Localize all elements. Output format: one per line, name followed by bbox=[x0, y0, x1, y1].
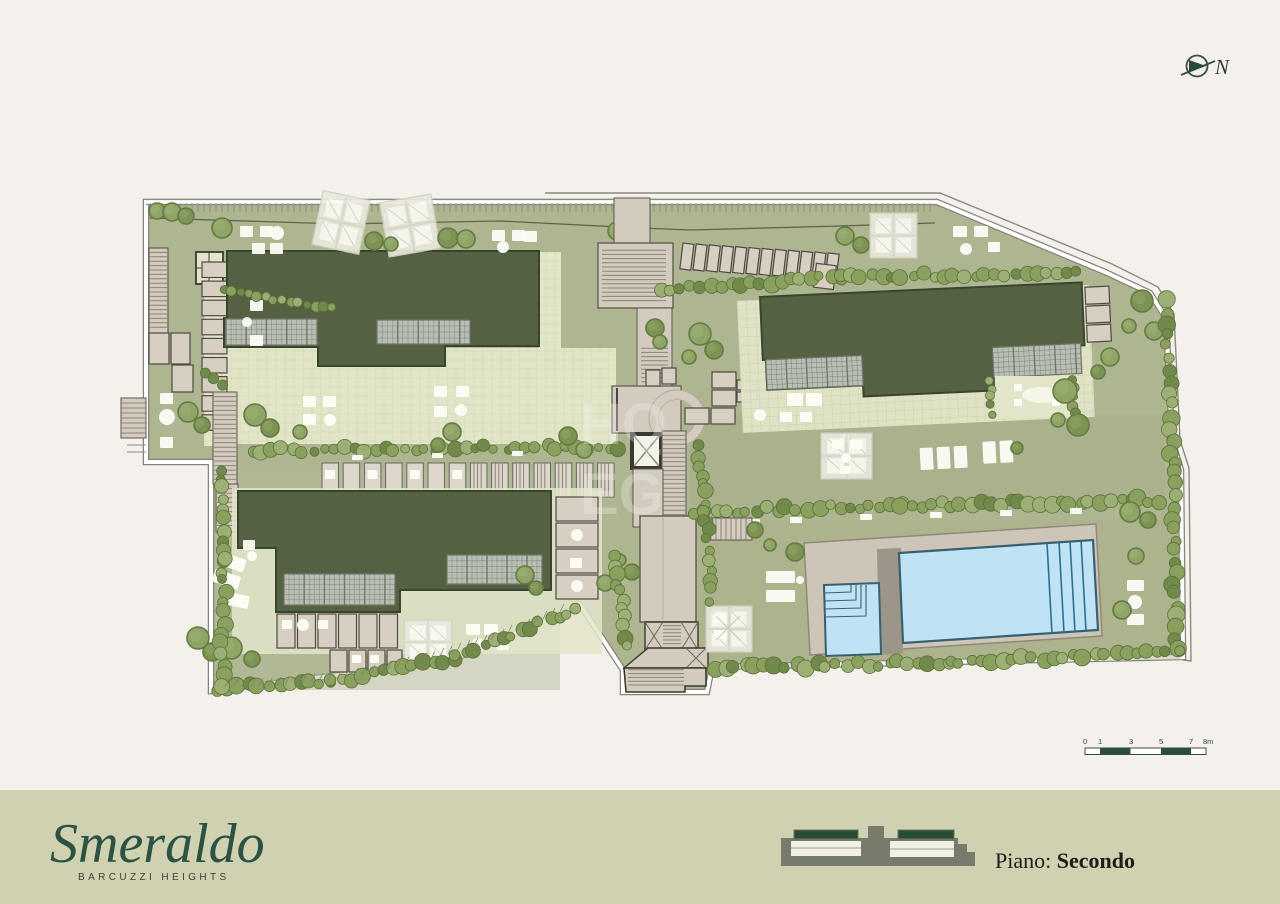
svg-text:HQ: HQ bbox=[580, 392, 667, 457]
svg-text:1: 1 bbox=[1098, 737, 1102, 746]
svg-text:8m: 8m bbox=[1203, 737, 1213, 746]
svg-text:Smeraldo: Smeraldo bbox=[50, 813, 265, 875]
svg-text:7: 7 bbox=[1189, 737, 1193, 746]
svg-text:EG: EG bbox=[580, 462, 664, 527]
svg-text:5: 5 bbox=[1159, 737, 1163, 746]
svg-text:N: N bbox=[1214, 55, 1230, 79]
svg-text:0: 0 bbox=[1083, 737, 1087, 746]
svg-text:BARCUZZI HEIGHTS: BARCUZZI HEIGHTS bbox=[78, 872, 230, 883]
svg-text:Piano: Secondo: Piano: Secondo bbox=[995, 848, 1135, 873]
svg-text:3: 3 bbox=[1129, 737, 1133, 746]
